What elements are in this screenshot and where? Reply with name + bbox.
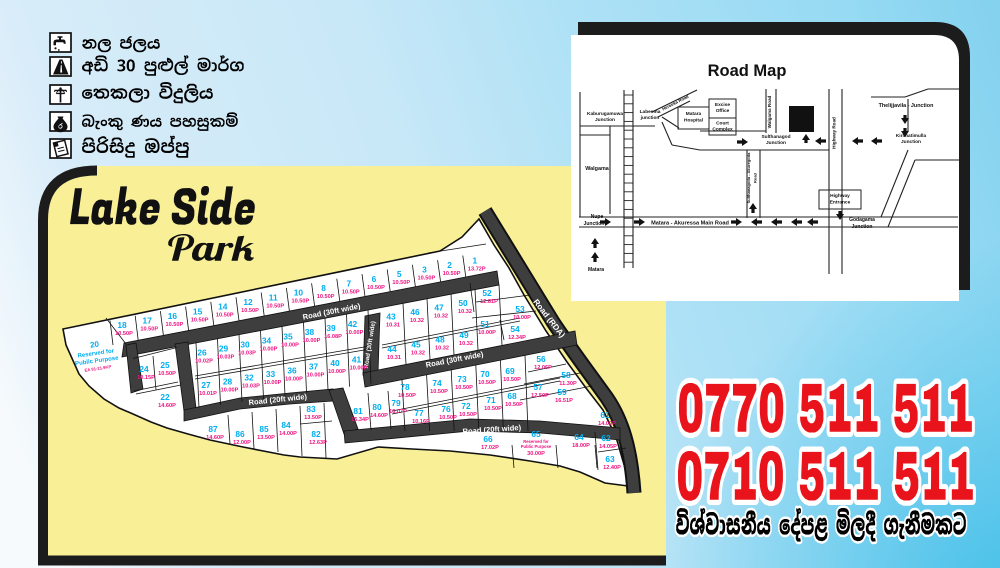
svg-text:81: 81 [353, 406, 363, 416]
svg-text:64: 64 [574, 432, 584, 442]
svg-text:Kaburugamuwa: Kaburugamuwa [587, 111, 623, 117]
svg-text:10.50P: 10.50P [292, 299, 310, 305]
svg-text:13.72P: 13.72P [468, 266, 486, 272]
svg-text:10.32: 10.32 [410, 318, 424, 324]
svg-text:16.08P: 16.08P [324, 334, 342, 340]
svg-text:73: 73 [457, 374, 467, 384]
svg-text:37: 37 [309, 362, 319, 372]
svg-text:10.50P: 10.50P [443, 271, 461, 277]
svg-text:69: 69 [505, 366, 515, 376]
svg-text:5: 5 [397, 269, 402, 279]
svg-text:10.32: 10.32 [458, 309, 472, 315]
svg-text:32: 32 [244, 373, 254, 383]
svg-text:12.06P: 12.06P [534, 365, 552, 371]
svg-text:70: 70 [480, 369, 490, 379]
svg-text:10.50P: 10.50P [216, 313, 234, 319]
svg-text:10.50P: 10.50P [503, 377, 521, 383]
svg-text:83: 83 [306, 404, 316, 414]
svg-text:86: 86 [235, 429, 245, 439]
svg-text:10.00P: 10.00P [307, 373, 325, 379]
svg-text:68: 68 [507, 391, 517, 401]
svg-text:10.50P: 10.50P [418, 276, 436, 282]
svg-text:10.00P: 10.00P [260, 346, 278, 352]
svg-text:12.34P: 12.34P [508, 335, 526, 341]
svg-text:Thelijjavila - Junction: Thelijjavila - Junction [879, 103, 934, 109]
svg-text:10.03P: 10.03P [217, 355, 235, 361]
svg-text:14.60P: 14.60P [206, 435, 224, 441]
svg-text:15.34P: 15.34P [351, 417, 369, 423]
svg-text:14.60P: 14.60P [370, 413, 388, 419]
svg-text:10.03P: 10.03P [242, 384, 260, 390]
svg-text:35: 35 [283, 331, 293, 341]
svg-text:76: 76 [441, 404, 451, 414]
svg-text:Labeema: Labeema [640, 109, 661, 115]
svg-text:72: 72 [461, 401, 471, 411]
svg-text:14.60P: 14.60P [158, 403, 176, 409]
svg-text:Road: Road [753, 172, 758, 183]
svg-text:10.00P: 10.00P [264, 380, 282, 386]
svg-text:Junction: Junction [766, 140, 786, 146]
svg-text:10.00P: 10.00P [478, 330, 496, 336]
svg-text:12.63P: 12.63P [309, 440, 327, 446]
svg-text:20: 20 [90, 339, 101, 349]
svg-text:50: 50 [458, 298, 468, 308]
svg-text:10.00P: 10.00P [281, 342, 299, 348]
svg-text:1: 1 [472, 255, 477, 265]
svg-text:10.00P: 10.00P [350, 365, 368, 371]
svg-text:Matara - Akuressa Main Road: Matara - Akuressa Main Road [651, 221, 729, 227]
svg-text:59: 59 [557, 387, 567, 397]
svg-text:Walgama Road: Walgama Road [767, 95, 772, 128]
svg-text:10.01P: 10.01P [199, 391, 217, 397]
svg-text:Walgama: Walgama [585, 166, 609, 172]
svg-text:17: 17 [143, 316, 153, 326]
svg-text:10: 10 [294, 288, 304, 298]
svg-text:10.32: 10.32 [459, 341, 473, 347]
svg-text:10.16P: 10.16P [412, 419, 430, 425]
svg-text:12.40P: 12.40P [603, 465, 621, 471]
svg-text:85: 85 [259, 424, 269, 434]
svg-text:Office: Office [716, 108, 730, 114]
svg-text:Sulthanagoda - Akuregoda: Sulthanagoda - Akuregoda [746, 152, 751, 204]
svg-text:10.00P: 10.00P [328, 369, 346, 375]
svg-text:57: 57 [533, 382, 543, 392]
svg-text:Hospital: Hospital [684, 118, 703, 124]
svg-text:10.02P: 10.02P [195, 359, 213, 365]
svg-text:12.00P: 12.00P [233, 440, 251, 446]
svg-text:27: 27 [201, 380, 211, 390]
svg-text:42: 42 [348, 319, 358, 329]
svg-text:Entrance: Entrance [830, 200, 851, 206]
svg-text:46: 46 [410, 307, 420, 317]
svg-text:29: 29 [219, 344, 229, 354]
svg-text:54: 54 [510, 324, 520, 334]
svg-text:2: 2 [447, 260, 452, 270]
svg-text:Excise: Excise [715, 102, 731, 108]
svg-text:10.31: 10.31 [387, 355, 401, 361]
svg-text:30: 30 [240, 340, 250, 350]
svg-text:14.00P: 14.00P [598, 421, 616, 427]
svg-text:18: 18 [117, 320, 127, 330]
svg-text:10.00P: 10.00P [285, 376, 303, 382]
svg-text:34: 34 [262, 335, 272, 345]
svg-text:53: 53 [515, 304, 525, 314]
svg-text:10.50P: 10.50P [484, 406, 502, 412]
svg-text:Court: Court [716, 121, 729, 127]
svg-text:79: 79 [391, 398, 401, 408]
svg-text:10.32: 10.32 [435, 346, 449, 352]
svg-text:52: 52 [482, 288, 492, 298]
svg-text:38: 38 [305, 327, 315, 337]
svg-text:41: 41 [352, 354, 362, 364]
svg-text:10.31: 10.31 [386, 323, 400, 329]
svg-text:10.50P: 10.50P [317, 294, 335, 300]
svg-text:56: 56 [536, 354, 546, 364]
svg-text:10.50P: 10.50P [241, 308, 259, 314]
svg-text:Junction: Junction [584, 221, 605, 227]
svg-text:10.32: 10.32 [411, 350, 425, 356]
svg-text:82: 82 [311, 429, 321, 439]
svg-text:10.50P: 10.50P [430, 389, 448, 395]
svg-text:15: 15 [193, 306, 203, 316]
svg-text:10.15P: 10.15P [137, 375, 155, 381]
svg-text:10.50P: 10.50P [478, 380, 496, 386]
svg-text:80: 80 [372, 402, 382, 412]
svg-text:3: 3 [422, 265, 427, 275]
svg-text:22: 22 [160, 392, 170, 402]
svg-text:Kirimatimulla: Kirimatimulla [896, 133, 927, 139]
svg-text:10.50P: 10.50P [439, 415, 457, 421]
svg-text:10.50P: 10.50P [505, 402, 523, 408]
svg-text:84: 84 [281, 420, 291, 430]
svg-text:74: 74 [432, 378, 442, 388]
svg-text:62: 62 [601, 433, 611, 443]
svg-text:Highway: Highway [830, 193, 850, 199]
svg-text:Junction: Junction [595, 117, 615, 123]
svg-text:87: 87 [208, 424, 218, 434]
svg-text:10.50P: 10.50P [158, 371, 176, 377]
svg-text:65: 65 [531, 429, 541, 439]
svg-text:10.50P: 10.50P [166, 322, 184, 328]
svg-text:10.00P: 10.00P [221, 387, 239, 393]
svg-text:12.50P: 12.50P [531, 393, 549, 399]
svg-text:Public Purpose: Public Purpose [521, 444, 552, 449]
svg-text:16.07P: 16.07P [389, 409, 407, 415]
svg-text:16: 16 [168, 311, 178, 321]
svg-text:45: 45 [411, 339, 421, 349]
svg-text:8: 8 [321, 283, 326, 293]
svg-text:13.50P: 13.50P [304, 415, 322, 421]
svg-text:36: 36 [287, 365, 297, 375]
svg-text:Junction: Junction [901, 139, 921, 145]
svg-text:Highway Road: Highway Road [832, 117, 837, 149]
svg-text:10.50P: 10.50P [367, 285, 385, 291]
svg-text:10.00P: 10.00P [513, 315, 531, 321]
svg-text:11: 11 [269, 292, 278, 302]
svg-text:10.50P: 10.50P [266, 303, 284, 309]
svg-text:16.51P: 16.51P [555, 398, 573, 404]
svg-text:25: 25 [160, 360, 170, 370]
svg-text:12.81P: 12.81P [480, 299, 498, 305]
svg-text:7: 7 [346, 278, 351, 288]
svg-text:10.50P: 10.50P [342, 289, 360, 295]
svg-text:Matara: Matara [686, 111, 702, 117]
svg-text:39: 39 [326, 323, 336, 333]
svg-text:14.00P: 14.00P [279, 431, 297, 437]
svg-text:10.00P: 10.00P [303, 338, 321, 344]
svg-text:24: 24 [139, 364, 149, 374]
svg-text:12: 12 [243, 297, 253, 307]
svg-text:78: 78 [400, 382, 410, 392]
svg-text:33: 33 [266, 369, 276, 379]
svg-text:18.00P: 18.00P [572, 443, 590, 449]
svg-text:10.32: 10.32 [434, 313, 448, 319]
svg-text:58: 58 [561, 370, 571, 380]
svg-text:10.50P: 10.50P [115, 331, 133, 337]
svg-text:17.02P: 17.02P [481, 445, 499, 451]
svg-text:10.03P: 10.03P [238, 351, 256, 357]
svg-text:48: 48 [435, 335, 445, 345]
svg-text:Road Map: Road Map [708, 62, 787, 80]
svg-text:10.50P: 10.50P [191, 317, 209, 323]
svg-text:51: 51 [480, 319, 490, 329]
svg-text:14: 14 [218, 302, 228, 312]
svg-text:Godagama: Godagama [849, 217, 875, 223]
svg-text:10.50P: 10.50P [392, 280, 410, 286]
svg-text:71: 71 [486, 395, 496, 405]
svg-text:28: 28 [223, 376, 233, 386]
svg-text:10.50P: 10.50P [140, 327, 158, 333]
svg-text:Sulthanagod: Sulthanagod [761, 134, 790, 140]
svg-text:10.50P: 10.50P [459, 412, 477, 418]
svg-text:44: 44 [387, 344, 397, 354]
svg-text:30.00P: 30.00P [527, 451, 545, 457]
svg-text:63: 63 [605, 454, 615, 464]
svg-text:6: 6 [372, 274, 377, 284]
svg-text:Complex: Complex [712, 127, 733, 133]
svg-text:10.50P: 10.50P [455, 385, 473, 391]
svg-text:13.50P: 13.50P [257, 435, 275, 441]
svg-text:47: 47 [434, 302, 444, 312]
svg-text:14.05P: 14.05P [599, 444, 617, 450]
svg-text:49: 49 [459, 330, 469, 340]
svg-text:Junction: Junction [852, 224, 873, 230]
svg-text:77: 77 [414, 408, 424, 418]
svg-text:40: 40 [330, 358, 340, 368]
svg-text:Matara: Matara [588, 267, 604, 273]
svg-text:Nupe: Nupe [591, 214, 604, 220]
svg-text:61: 61 [600, 410, 610, 420]
svg-text:junction: junction [640, 115, 660, 121]
svg-text:66: 66 [483, 434, 493, 444]
svg-text:26: 26 [197, 348, 207, 358]
svg-text:43: 43 [386, 312, 396, 322]
svg-text:10.00P: 10.00P [346, 330, 364, 336]
svg-text:10.50P: 10.50P [398, 393, 416, 399]
